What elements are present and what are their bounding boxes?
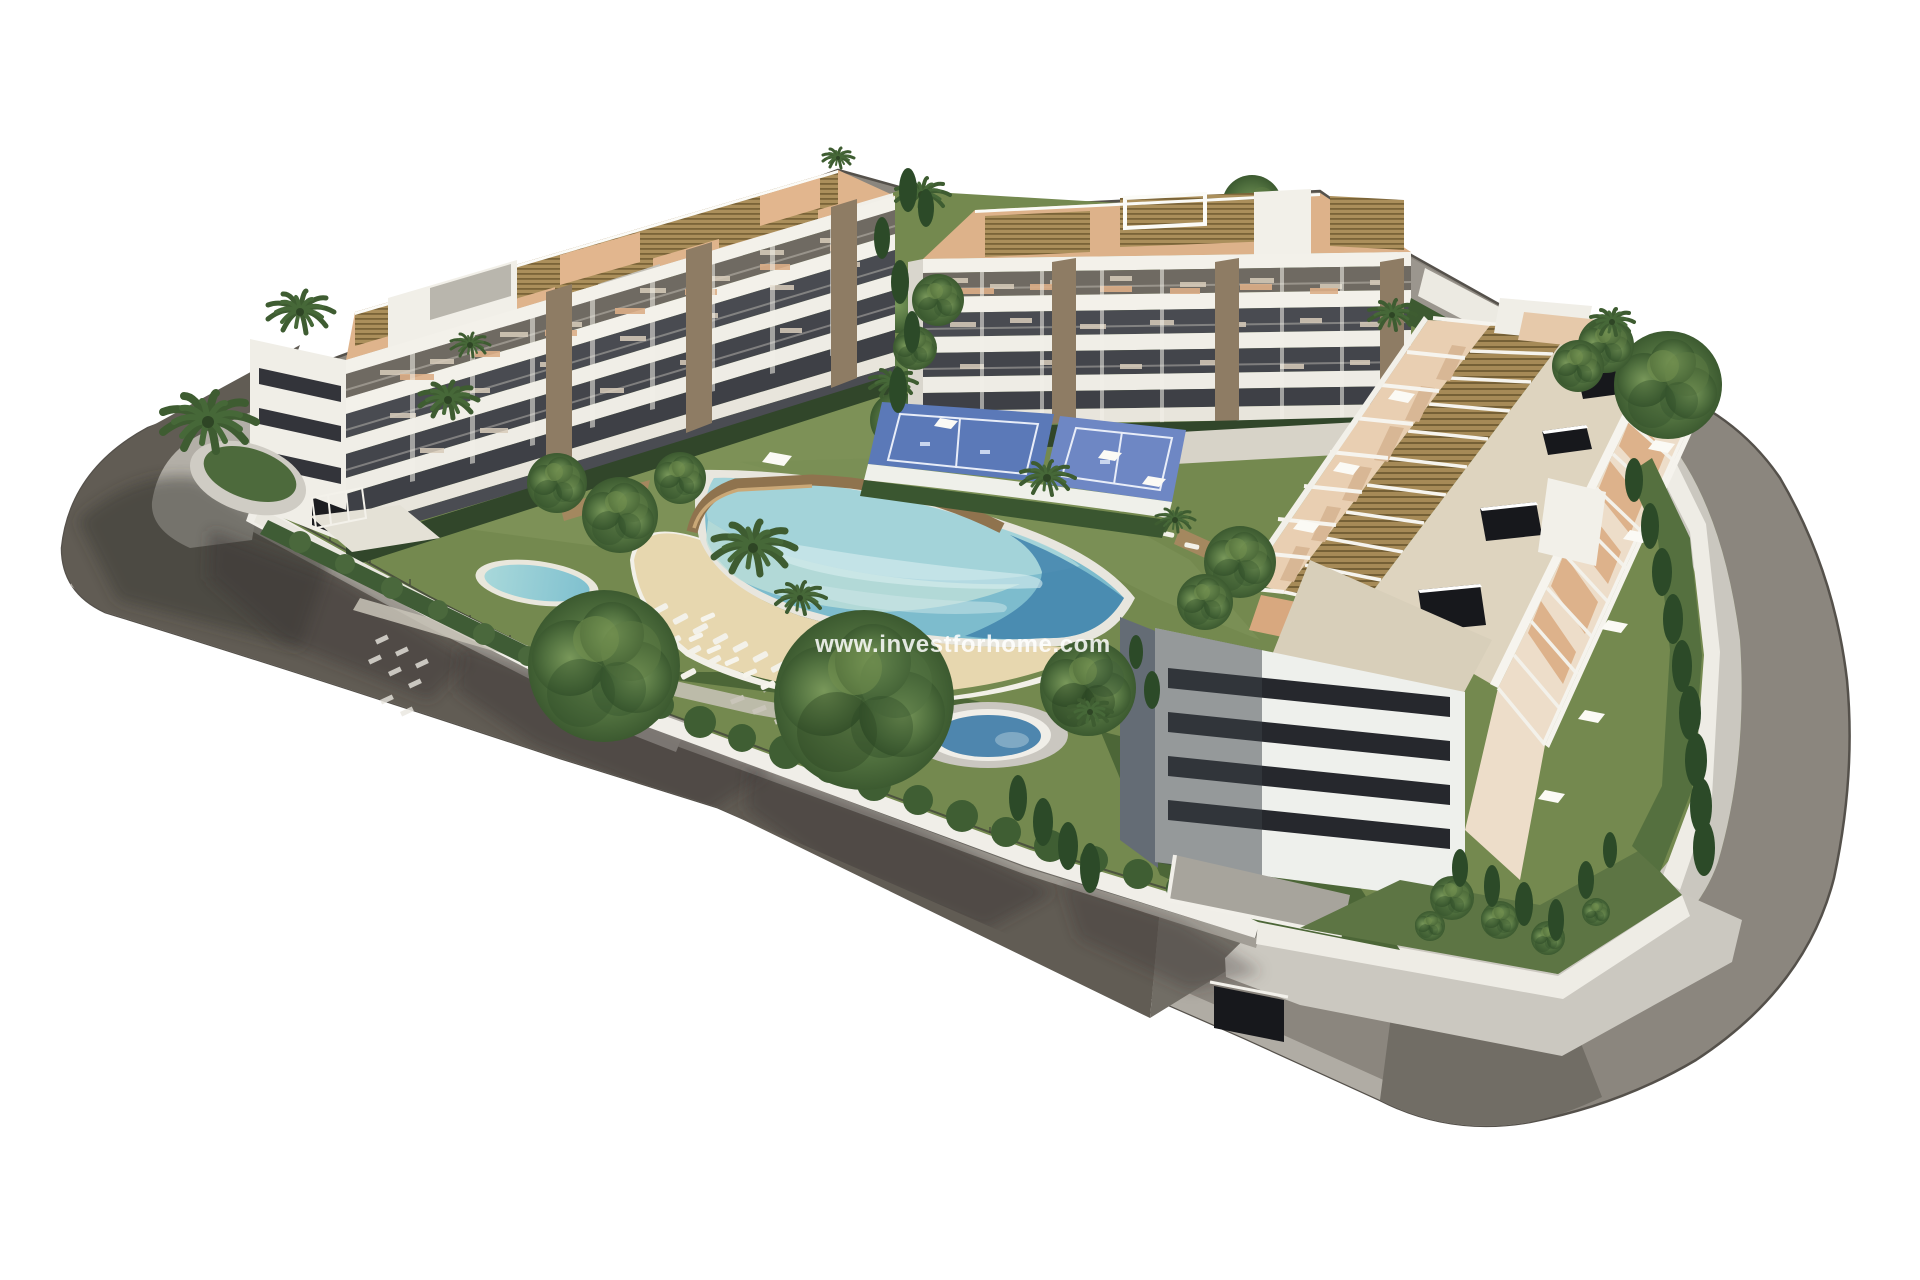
- svg-text:www.investforhome.com: www.investforhome.com: [814, 631, 1111, 658]
